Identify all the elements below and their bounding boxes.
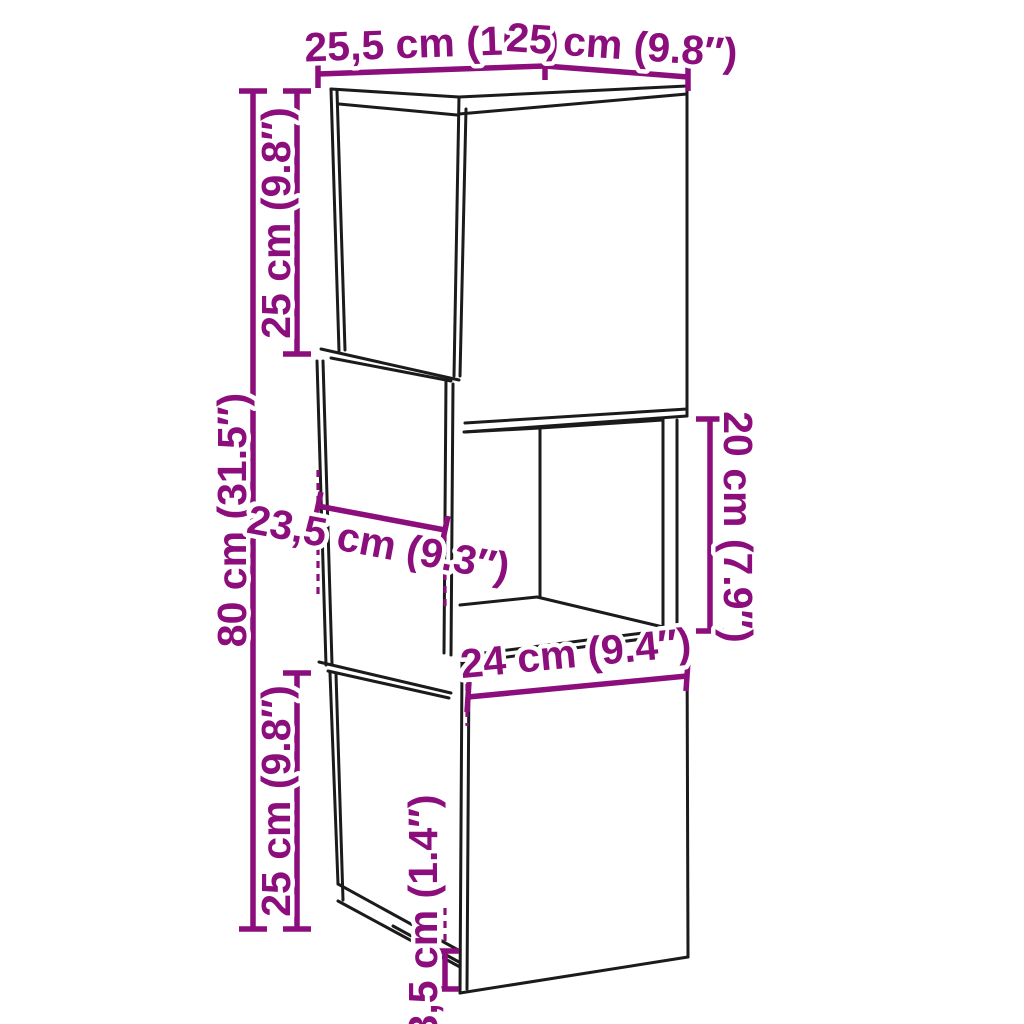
dim-label-lower-section-height: 25 cm (9.8″) [253, 685, 299, 917]
cabinet-top-section [321, 86, 687, 432]
dim-label-middle-depth: 23,5 cm (9.3″) [244, 496, 514, 591]
dim-label-middle-opening-height: 20 cm (7.9″) [715, 411, 761, 643]
furniture-dimension-diagram: 25,5 cm (10″) 25 cm (9.8″) 25 cm (9.8″) … [0, 0, 1024, 1024]
cabinet-bottom-section [330, 633, 688, 993]
diagram-canvas: 25,5 cm (10″) 25 cm (9.8″) 25 cm (9.8″) … [0, 0, 1024, 1024]
dim-label-upper-section-height: 25 cm (9.8″) [253, 107, 299, 339]
dim-label-base-gap-height: 3,5 cm (1.4″) [400, 795, 446, 1024]
